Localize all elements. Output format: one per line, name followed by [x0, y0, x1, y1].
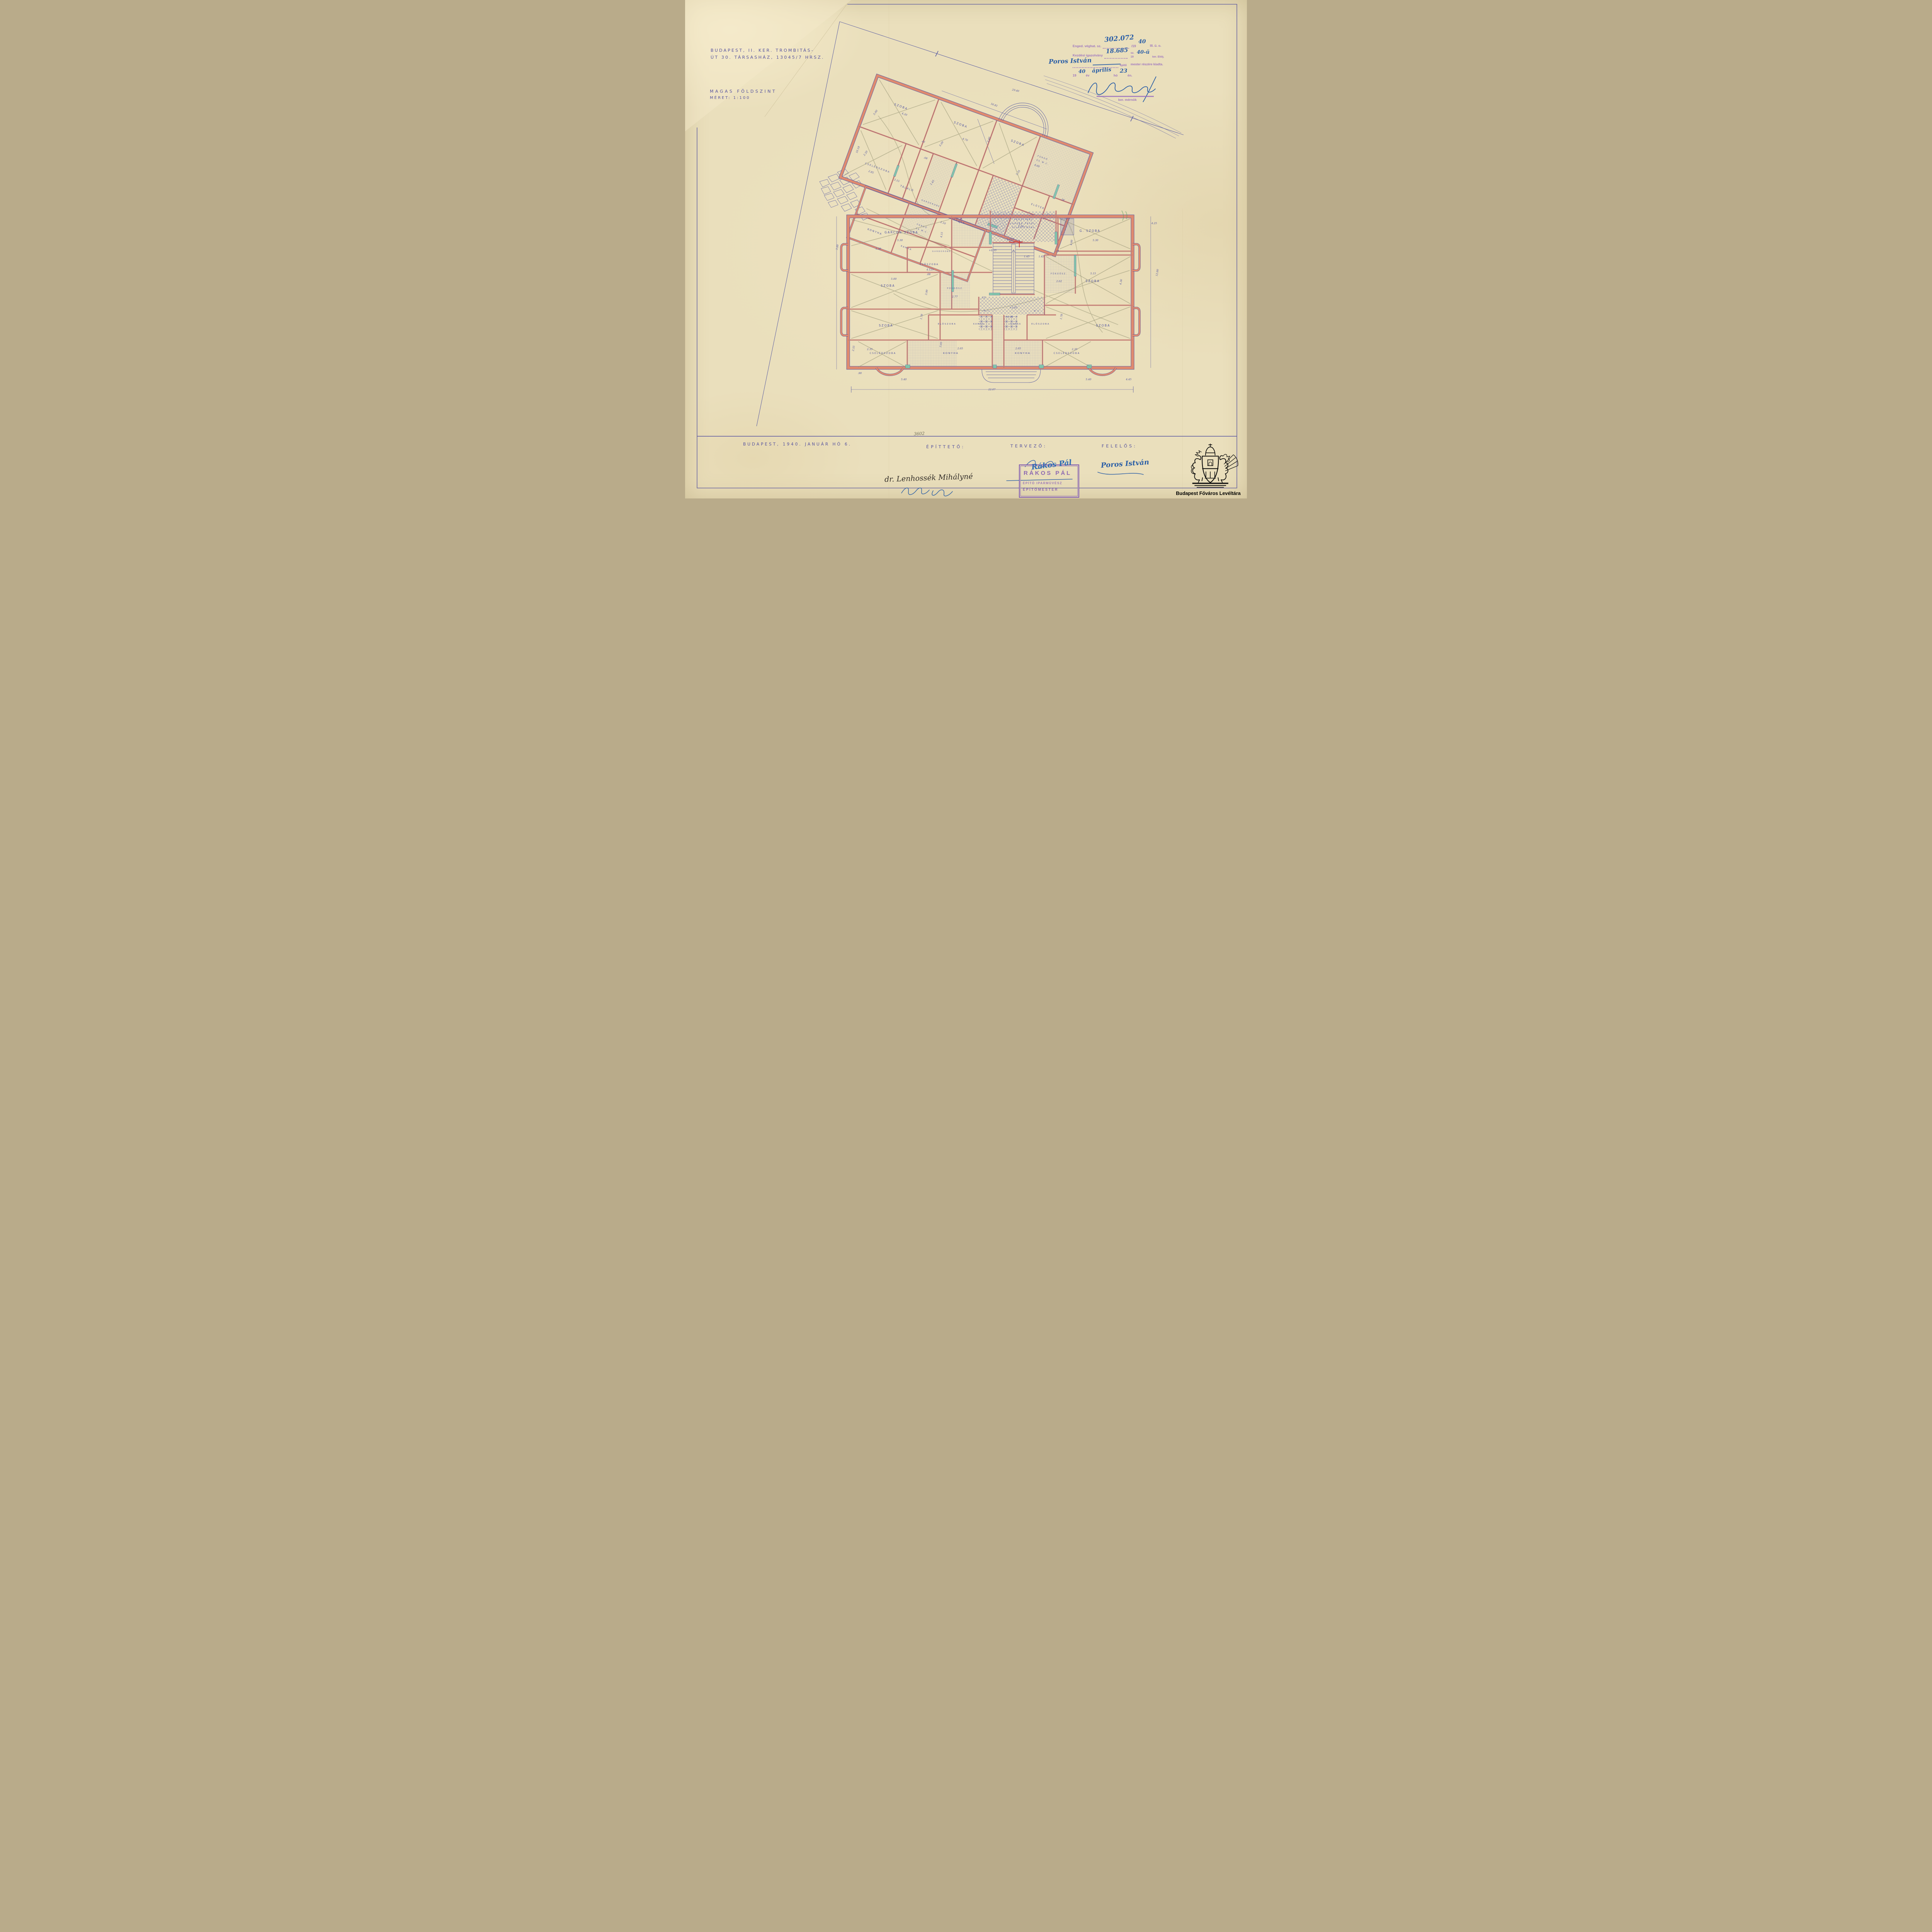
date-line: BUDAPEST, 1940. JANUÁR HÓ 6. — [743, 442, 852, 447]
dimension-label: 5.00 — [891, 277, 896, 281]
dimension-label: 3.90 — [925, 289, 929, 296]
room-label: GARCON SZOBA — [884, 231, 918, 234]
architect-stamp-line3: ÉPÍTŐMESTER — [1023, 488, 1058, 492]
dimension-label: 1.78 — [920, 314, 923, 320]
entrance-terrace — [982, 369, 1041, 383]
dimension-label: 2.55 — [852, 345, 856, 352]
archive-logo-text: Budapest Főváros Levéltára — [1175, 491, 1242, 496]
dimension-label: 4.20 — [901, 112, 908, 117]
radiator — [1061, 219, 1074, 235]
stamp-line4-month: április — [1092, 66, 1112, 74]
epitteto-label: ÉPÍTTETŐ: — [926, 444, 965, 449]
dimension-label: 5.40 — [901, 378, 906, 381]
tervezo-label: TERVEZŐ: — [1010, 444, 1047, 449]
archive-emblem — [1191, 444, 1238, 487]
stamp-line4-day: 23 — [1120, 68, 1127, 74]
room-label: W.C. — [1034, 310, 1041, 312]
stamp-line2-year-prefix: 19 — [1131, 56, 1134, 58]
stamp-line3-suffix: mester részére kiadta. — [1131, 63, 1163, 66]
dimension-label: 4.36 — [1119, 279, 1123, 286]
dimension-label: 2.35 — [867, 348, 872, 351]
stamp-line3-epito: építő — [1120, 63, 1127, 67]
stamp-underline — [1097, 96, 1154, 97]
room-label: ELŐSZOBA — [1031, 323, 1050, 325]
stamp-line1-year-prefix: /19 — [1131, 44, 1136, 48]
stamp-dotted-2 — [1104, 58, 1128, 59]
dimension-label: 1.78 — [1060, 314, 1063, 320]
dimension-label: 5.30 — [1093, 239, 1098, 242]
room-label: ELŐSZOBA — [920, 263, 939, 266]
dimension-label: 4.70 — [962, 137, 968, 142]
room-label: VESZTIBÜL — [1014, 218, 1033, 221]
dimension-label: 1.30 — [876, 247, 881, 250]
stamp-line4-prefix: 19 — [1073, 73, 1076, 77]
dimension-label: 5.15 — [1090, 272, 1096, 275]
sheet-number-pencil: 3602 — [914, 431, 925, 436]
room-label: CSELÉDSZOBA — [870, 352, 896, 355]
title-line-2: ÚT 30. TÁRSASHÁZ, 13045/7 HRSZ. — [711, 55, 825, 60]
room-label: KONYHA — [943, 352, 959, 355]
dimension-label: 2.35 — [1071, 348, 1077, 351]
dimension-label: 2.65 — [1015, 347, 1021, 350]
room-label: GARDEROBE — [932, 250, 951, 253]
dimension-label: 6.11 — [1008, 315, 1013, 318]
stamp-signer-title: ker. mérnök — [1118, 98, 1137, 102]
stamp-line2-suffix: ker. Előlj. — [1152, 56, 1164, 58]
dimension-label: 5.00 — [872, 109, 878, 116]
stamp-line1-label: Enged. véghat. sz. — [1073, 44, 1101, 48]
room-label: SZOBA — [1085, 279, 1100, 283]
room-label: KAMRA — [973, 323, 985, 325]
drawing-sheet: SZOBASZOBASZOBACSELÉDSZOBATÁLALÓGARDEROB… — [685, 0, 1247, 498]
room-label: KAMRA — [1010, 323, 1022, 325]
title-line-1: BUDAPEST, II. KER. TROMBITÁS- — [711, 48, 814, 53]
stamp-line1-suffix: III. ü. o. — [1150, 44, 1161, 48]
stamp-line2-sz: sz. — [1131, 52, 1134, 54]
dimension-label: 4.25 — [1151, 222, 1157, 225]
dimension-label: 2.65 — [957, 347, 963, 350]
room-label: KAMRA — [900, 245, 912, 251]
dimension-label: 5.30 — [897, 239, 903, 242]
felelos-label: FELELŐS: — [1102, 444, 1137, 449]
dimension-label: .08 — [923, 156, 928, 160]
dimension-label: +0.35 — [989, 249, 997, 252]
room-label: KONYHA — [867, 228, 883, 236]
stamp-line2-year: 40-ü — [1137, 49, 1150, 55]
stamp-line4-year: 40 — [1078, 69, 1085, 75]
dimension-label: .90 — [858, 372, 862, 375]
room-label: SZOBA — [879, 324, 893, 327]
dimension-label: 12.80 — [1155, 269, 1159, 277]
dimension-label: 2.625 — [1007, 238, 1014, 241]
room-label: W.C. — [984, 310, 991, 312]
dimension-label: 2.77 — [952, 295, 958, 298]
dimension-label: .28 — [1055, 250, 1059, 253]
stamp-blue-strike — [1093, 64, 1121, 66]
dimension-label: 3.80 — [835, 244, 839, 250]
dimension-label: 2.20 — [862, 150, 868, 157]
stairs — [993, 243, 1034, 294]
subtitle-floor: MAGAS FÖLDSZINT — [710, 89, 777, 94]
room-label: ELŐSZOBA — [938, 323, 956, 325]
room-label: G. SZOBA — [1080, 229, 1100, 233]
dimension-label: 4.125 — [926, 268, 934, 271]
dimension-label: 4.15 — [940, 232, 944, 238]
dimension-label: 2.85 — [867, 170, 874, 175]
room-label: VILÁGÍTÓVAL — [1012, 226, 1035, 229]
dimension-label: 22.07 — [988, 388, 996, 391]
entrance-corridor — [993, 316, 1003, 367]
room-label: KONYHA — [1015, 352, 1031, 355]
dimension-label: 4.00 — [1070, 240, 1074, 246]
epitteto-countersignature — [901, 488, 952, 496]
dimension-label: +2.05 — [1010, 306, 1017, 309]
stamp-builder-name: Poros István — [1049, 56, 1092, 65]
room-label: LUXFER FELÜL- — [1010, 222, 1037, 225]
architect-stamp-name: RÁKOS PÁL — [1024, 470, 1071, 476]
architect-stamp: RÁKOS PÁL ÉPÍTŐ IPARMŰVÉSZ ÉPÍTŐMESTER — [1019, 464, 1079, 498]
architect-stamp-line2: ÉPÍTŐ IPARMŰVÉSZ — [1023, 481, 1062, 485]
felelos-signature-flourish — [1098, 472, 1143, 474]
dimension-label: 16.81 — [990, 102, 998, 108]
stamp-line1-year: 40 — [1138, 39, 1146, 45]
room-label: FÜRDŐSZ. — [947, 287, 964, 290]
room-label: CSELÉDSZOBA — [1054, 352, 1080, 355]
lower-block — [841, 211, 1139, 383]
room-label: ELŐTÉR — [1031, 202, 1045, 210]
room-label: FÜRDŐSZ. — [1051, 272, 1068, 275]
approval-stamp: Enged. véghat. sz. 302.072 /19 40 III. ü… — [1073, 39, 1181, 100]
subtitle-scale: MÉRET: 1:100 — [710, 96, 750, 100]
dimension-label: 4.45 — [1126, 378, 1131, 381]
room-label: SZOBA — [881, 284, 895, 287]
dimension-label: .13 — [981, 296, 985, 299]
dimension-label: 2.15 — [893, 178, 900, 183]
dimension-label: .08 — [927, 273, 930, 276]
dimension-label: 1.45 — [1039, 255, 1044, 258]
dimension-label: .41 — [921, 139, 925, 144]
dimension-label: 10.18 — [855, 146, 861, 153]
room-label: SZOBA — [1096, 324, 1110, 327]
room-label: SZOBA — [1010, 139, 1025, 147]
dimension-label: 29.40 — [1012, 88, 1020, 93]
dimension-label: 2.62 — [1056, 280, 1062, 283]
dimension-label: 5.40 — [1086, 378, 1091, 381]
dimension-label: 1.45 — [1024, 255, 1029, 258]
stamp-cert-number: 18.685 — [1105, 46, 1128, 55]
dimension-label: 3.40 — [986, 136, 991, 143]
